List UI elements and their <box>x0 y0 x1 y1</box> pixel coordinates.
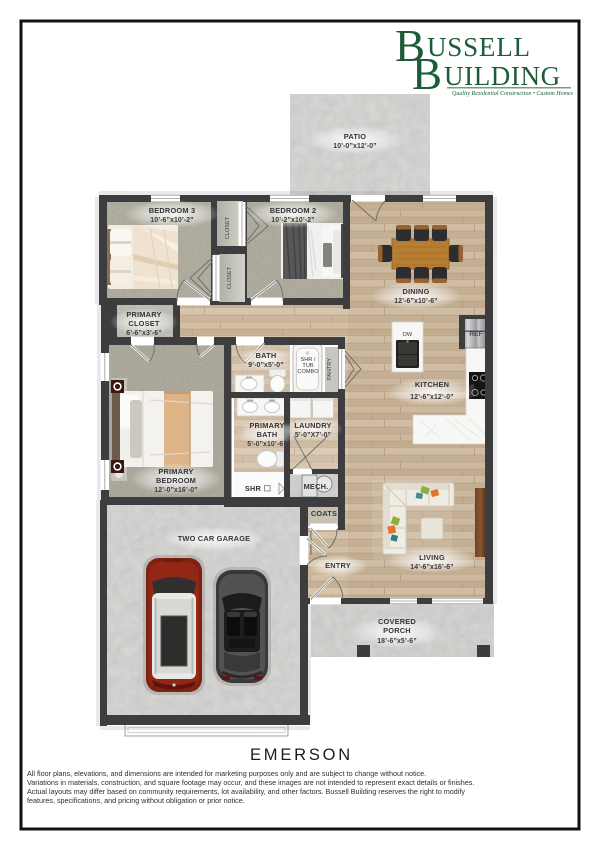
svg-text:ENTRY: ENTRY <box>325 561 351 570</box>
svg-text:DINING: DINING <box>402 287 429 296</box>
svg-text:REF: REF <box>469 331 483 338</box>
svg-text:USSELL: USSELL <box>427 32 531 62</box>
svg-text:B: B <box>412 49 442 99</box>
svg-text:All floor plans, elevations, a: All floor plans, elevations, and dimensi… <box>27 769 426 778</box>
svg-text:KITCHEN: KITCHEN <box>415 380 449 389</box>
svg-text:PRIMARY: PRIMARY <box>158 467 193 476</box>
svg-text:PANTRY: PANTRY <box>327 358 333 380</box>
svg-text:CLOSET: CLOSET <box>227 266 233 289</box>
svg-text:Actual layouts may differ base: Actual layouts may differ based on commu… <box>27 787 465 796</box>
svg-text:PATIO: PATIO <box>344 132 367 141</box>
svg-text:UILDING: UILDING <box>444 61 561 91</box>
svg-text:BATH: BATH <box>256 351 277 360</box>
svg-text:features, specifications, and: features, specifications, and pricing wi… <box>27 796 245 805</box>
svg-text:TWO CAR GARAGE: TWO CAR GARAGE <box>178 534 251 543</box>
svg-text:5’-0”X7’-0”: 5’-0”X7’-0” <box>295 432 331 439</box>
svg-text:BEDROOM 3: BEDROOM 3 <box>149 206 196 215</box>
svg-text:Quality Residential Constructi: Quality Residential Construction • Custo… <box>452 91 574 97</box>
svg-text:LAUNDRY: LAUNDRY <box>294 421 331 430</box>
svg-text:PORCH: PORCH <box>383 626 411 635</box>
svg-text:12’-0”x16’-0”: 12’-0”x16’-0” <box>154 487 197 494</box>
svg-text:COMBO: COMBO <box>297 369 319 375</box>
svg-text:5’-0”x10’-6”: 5’-0”x10’-6” <box>247 441 287 448</box>
svg-text:12’-6”x10’-6”: 12’-6”x10’-6” <box>394 298 437 305</box>
svg-text:Variations in materials, const: Variations in materials, construction, a… <box>27 778 474 787</box>
svg-text:10’-2”x10’-2”: 10’-2”x10’-2” <box>271 217 314 224</box>
svg-text:10’-6”x10’-2”: 10’-6”x10’-2” <box>150 217 193 224</box>
svg-text:CLOSET: CLOSET <box>225 216 231 239</box>
svg-text:9’-0”x5’-0”: 9’-0”x5’-0” <box>248 362 284 369</box>
svg-text:COATS: COATS <box>311 509 337 518</box>
svg-text:12’-6”x12’-0”: 12’-6”x12’-0” <box>410 394 453 401</box>
svg-text:10’-0”x12’-0”: 10’-0”x12’-0” <box>333 143 376 150</box>
svg-text:18’-6”x5’-6”: 18’-6”x5’-6” <box>377 638 417 645</box>
svg-text:DW: DW <box>403 332 413 338</box>
svg-text:14’-6”x16’-6”: 14’-6”x16’-6” <box>410 564 453 571</box>
svg-text:PRIMARY: PRIMARY <box>126 310 161 319</box>
svg-text:6’-6”x3’-6”: 6’-6”x3’-6” <box>126 330 162 337</box>
svg-text:SHR: SHR <box>245 484 262 493</box>
svg-text:CLOSET: CLOSET <box>128 319 159 328</box>
svg-text:COVERED: COVERED <box>378 617 416 626</box>
svg-text:BEDROOM 2: BEDROOM 2 <box>270 206 317 215</box>
svg-text:LIVING: LIVING <box>419 553 445 562</box>
svg-text:BATH: BATH <box>257 430 278 439</box>
svg-text:BEDROOM: BEDROOM <box>156 476 196 485</box>
svg-text:EMERSON: EMERSON <box>250 746 353 764</box>
svg-text:MECH.: MECH. <box>304 482 329 491</box>
svg-text:PRIMARY: PRIMARY <box>249 421 284 430</box>
